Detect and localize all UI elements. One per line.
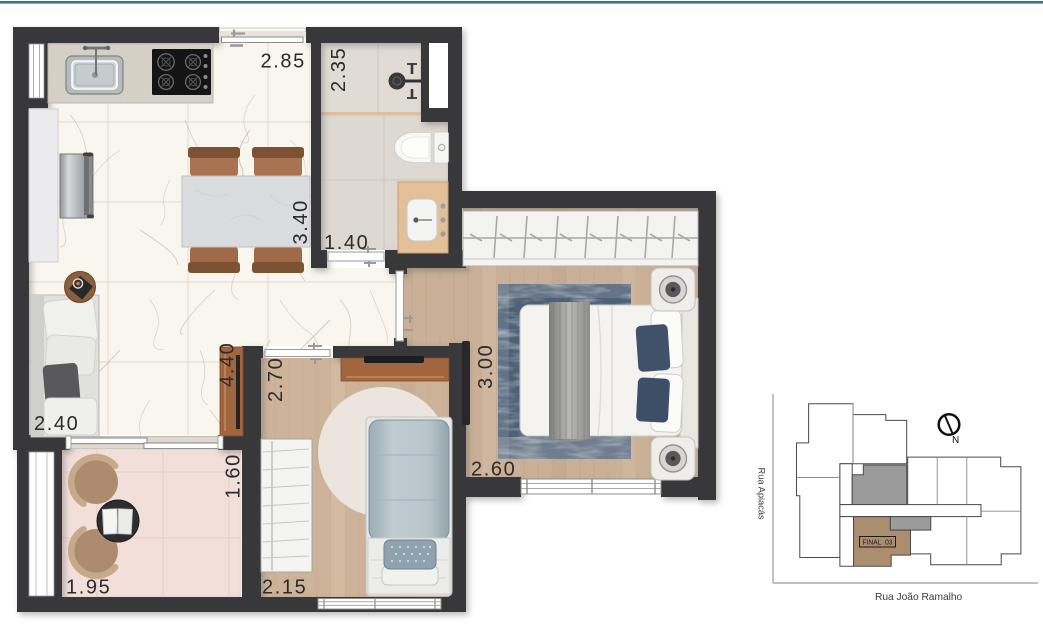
svg-text:FINAL 03: FINAL 03 (863, 540, 893, 547)
svg-text:N: N (952, 435, 959, 446)
svg-text:1.60: 1.60 (223, 453, 245, 498)
svg-text:4.40: 4.40 (217, 342, 239, 387)
svg-text:2.15: 2.15 (262, 577, 307, 599)
svg-text:2.40: 2.40 (34, 413, 79, 435)
svg-text:1.40: 1.40 (324, 232, 369, 254)
svg-text:3.00: 3.00 (475, 344, 497, 389)
svg-text:2.60: 2.60 (471, 459, 516, 481)
svg-text:2.35: 2.35 (328, 47, 350, 92)
svg-text:3.40: 3.40 (290, 199, 312, 244)
svg-text:Rua Apiacás: Rua Apiacás (757, 468, 767, 521)
svg-text:Rua João Ramalho: Rua João Ramalho (875, 592, 963, 603)
svg-text:1.95: 1.95 (66, 577, 111, 599)
svg-text:2.70: 2.70 (265, 357, 287, 402)
svg-text:2.85: 2.85 (261, 51, 306, 73)
